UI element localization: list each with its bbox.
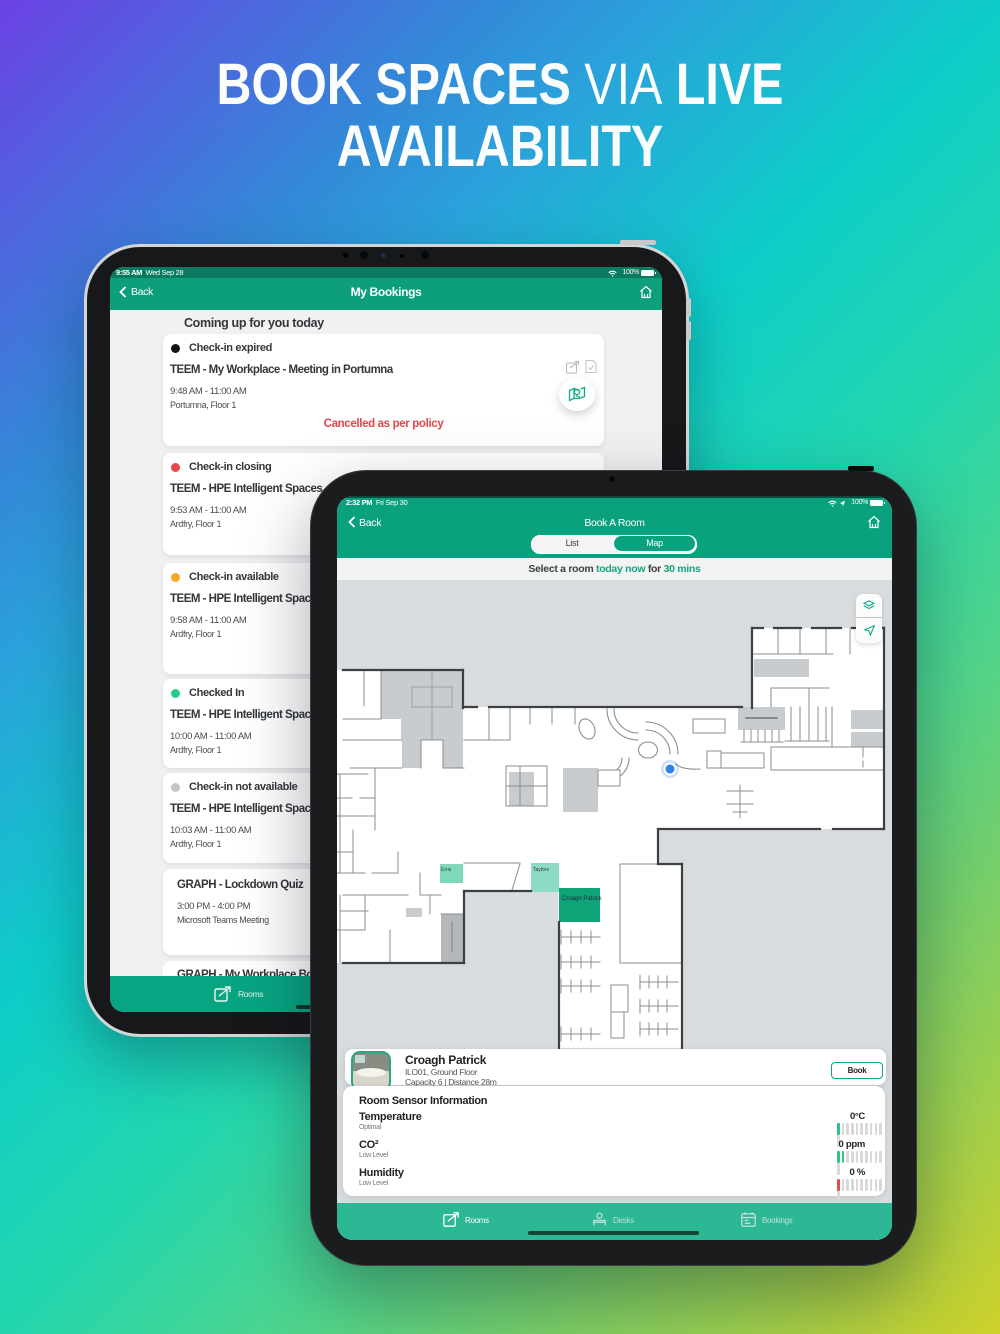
- svg-text:Croagh Patrick: Croagh Patrick: [562, 896, 603, 902]
- svg-text:Taylors: Taylors: [533, 867, 549, 873]
- svg-text:Erris: Erris: [441, 867, 452, 873]
